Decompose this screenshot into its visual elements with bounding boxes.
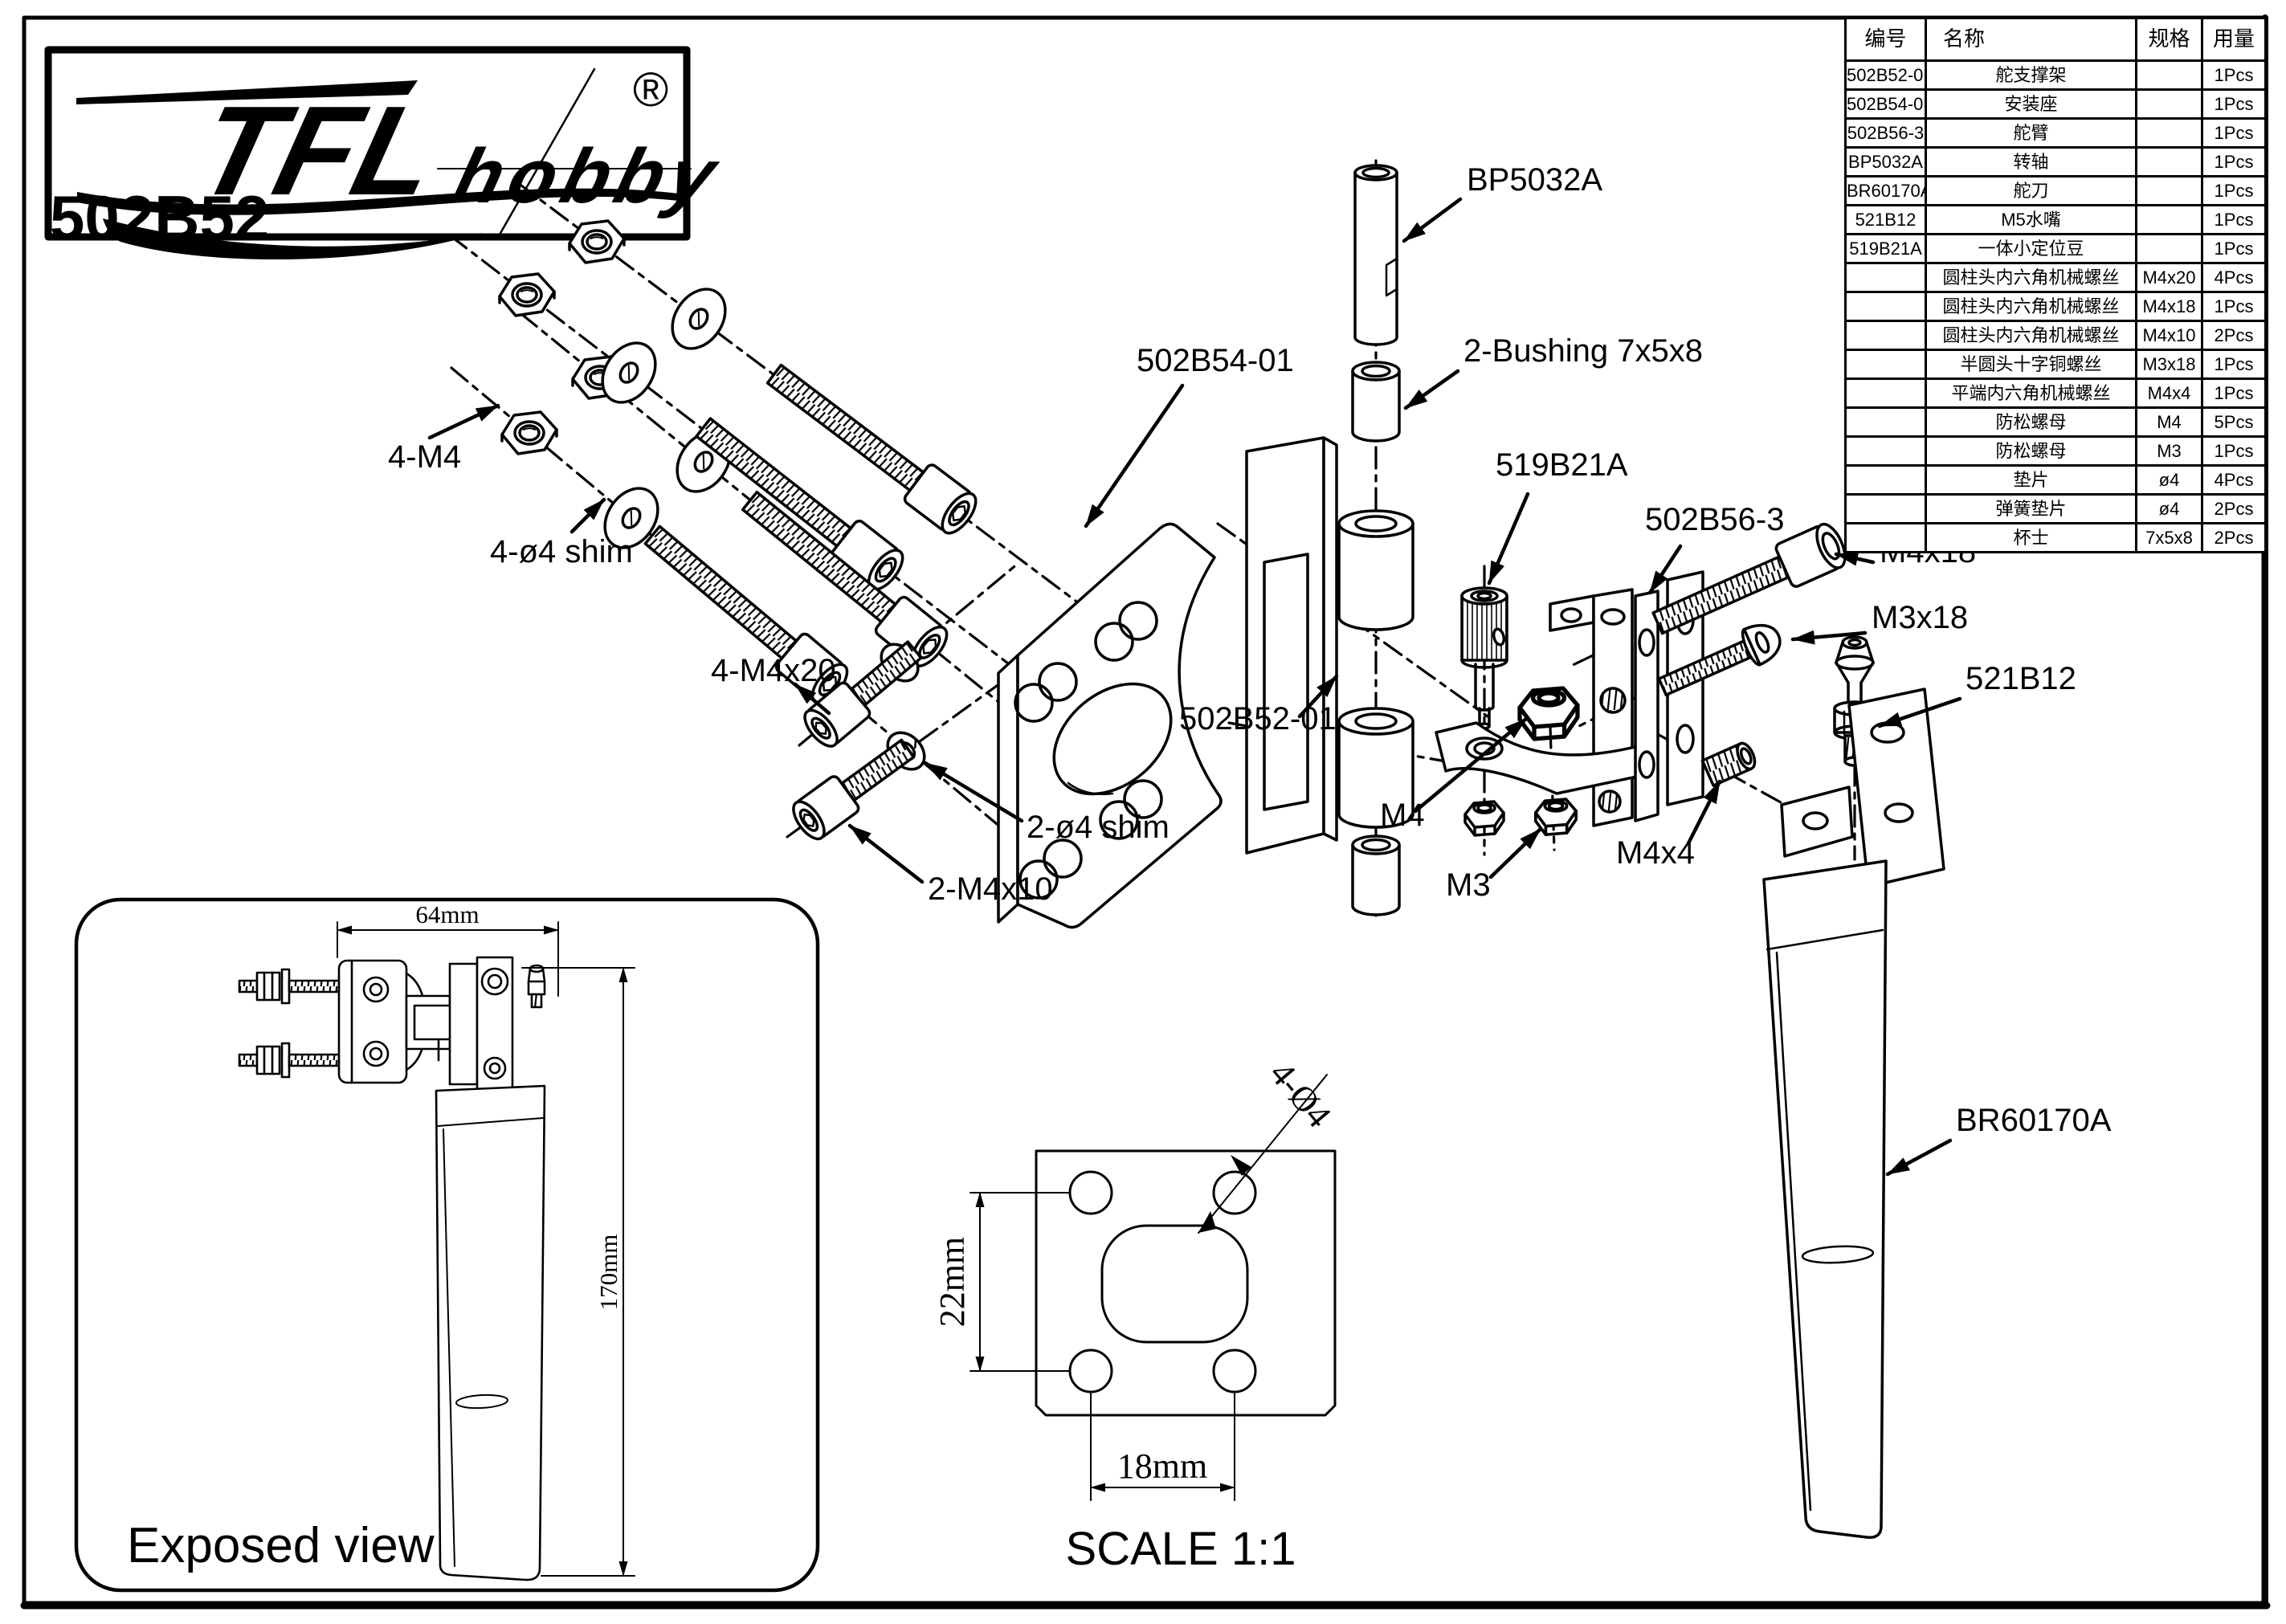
table-row: 502B54-01安装座1Pcs [1846,90,2266,119]
table-header-row: 编号 名称 规格 用量 [1846,18,2266,61]
cell-name: 防松螺母 [1926,437,2137,466]
callout-m3: M3 [1446,867,1491,903]
cell-qty: 1Pcs [2202,235,2266,263]
cell-code [1846,379,1926,408]
cell-name: 平端内六角机械螺丝 [1926,379,2137,408]
cell-name: 转轴 [1926,148,2137,177]
cell-qty: 1Pcs [2202,61,2266,90]
m4-lock-nut [1520,688,1578,739]
cell-spec: M3x18 [2137,350,2202,379]
dim-64mm: 64mm [415,900,479,928]
exposed-view-title: Exposed view [127,1518,435,1573]
cell-name: 杯士 [1926,524,2137,553]
cell-code [1846,495,1926,524]
callout-519b21a: 519B21A [1496,447,1628,483]
cell-code: 521B12 [1846,206,1926,235]
cell-code [1846,466,1926,495]
header-code: 编号 [1846,18,1926,61]
cell-name: 防松螺母 [1926,408,2137,437]
cell-name: 半圆头十字铜螺丝 [1926,350,2137,379]
scale-drawing: 22mm 18mm 4-Ø4 SCALE 1:1 [933,1054,1339,1575]
cell-code: 502B52-01 [1846,61,1926,90]
cell-qty: 1Pcs [2202,350,2266,379]
dim-22mm: 22mm [933,1237,972,1327]
registered-mark: ® [633,63,668,116]
cell-code [1846,321,1926,350]
cell-code: BP5032A [1846,148,1926,177]
table-row: 杯士7x5x82Pcs [1846,524,2266,553]
table-row: 平端内六角机械螺丝M4x41Pcs [1846,379,2266,408]
m4x4-set-screw [1702,741,1758,785]
cell-name: 圆柱头内六角机械螺丝 [1926,292,2137,321]
cell-code: 502B54-01 [1846,90,1926,119]
cell-spec: M3 [2137,437,2202,466]
callout-4-o4-shim: 4-ø4 shim [490,534,633,569]
cell-code [1846,350,1926,379]
logo-hobby: hobby [446,133,731,218]
cell-name: 安装座 [1926,90,2137,119]
scale-title: SCALE 1:1 [1066,1523,1296,1575]
cell-spec [2137,119,2202,148]
cell-name: 舵刀 [1926,177,2137,206]
cell-qty: 1Pcs [2202,292,2266,321]
cell-name: M5水嘴 [1926,206,2137,235]
cell-spec [2137,235,2202,263]
cell-spec [2137,177,2202,206]
table-row: 防松螺母M31Pcs [1846,437,2266,466]
cell-name: 垫片 [1926,466,2137,495]
callout-4-m4x20: 4-M4x20 [711,653,836,688]
o4-shims [592,280,741,558]
parts-table: 编号 名称 规格 用量 502B52-01舵支撑架1Pcs 502B54-01安… [1844,17,2267,553]
page: { "brand": { "tfl": "TFL", "hobby": "hob… [0,0,2286,1624]
table-row: 垫片ø44Pcs [1846,466,2266,495]
cell-qty: 1Pcs [2202,177,2266,206]
cell-code [1846,524,1926,553]
cell-spec: M4x20 [2137,263,2202,292]
cell-name: 一体小定位豆 [1926,235,2137,263]
shaft-bp5032a [1355,165,1397,345]
callout-521b12: 521B12 [1966,661,2076,696]
cell-qty: 1Pcs [2202,379,2266,408]
dim-4-o4: 4-Ø4 [1262,1054,1339,1135]
header-name: 名称 [1926,18,2137,61]
cell-code [1846,408,1926,437]
cell-spec [2137,61,2202,90]
table-row: 圆柱头内六角机械螺丝M4x181Pcs [1846,292,2266,321]
cell-qty: 2Pcs [2202,524,2266,553]
callout-2-o4-shim: 2-ø4 shim [1027,810,1170,845]
header-spec: 规格 [2137,18,2202,61]
table-row: 519B21A一体小定位豆1Pcs [1846,235,2266,263]
cell-qty: 1Pcs [2202,119,2266,148]
cell-code: 519B21A [1846,235,1926,263]
cell-spec: M4 [2137,408,2202,437]
dim-18mm: 18mm [1117,1447,1207,1486]
cell-spec [2137,206,2202,235]
cell-qty: 4Pcs [2202,466,2266,495]
callout-2-m4x10: 2-M4x10 [928,871,1053,907]
table-row: 防松螺母M45Pcs [1846,408,2266,437]
cell-name: 舵支撑架 [1926,61,2137,90]
cell-code: BR60170A [1846,177,1926,206]
cell-qty: 1Pcs [2202,148,2266,177]
table-row: 圆柱头内六角机械螺丝M4x102Pcs [1846,321,2266,350]
cell-spec: M4x18 [2137,292,2202,321]
part-number: 502B52 [50,182,269,253]
callout-502b56: 502B56-3 [1645,502,1784,537]
cell-qty: 5Pcs [2202,408,2266,437]
cell-qty: 2Pcs [2202,321,2266,350]
cell-code [1846,292,1926,321]
cell-code [1846,437,1926,466]
table-row: 圆柱头内六角机械螺丝M4x204Pcs [1846,263,2266,292]
cell-qty: 2Pcs [2202,495,2266,524]
table-row: 521B12M5水嘴1Pcs [1846,206,2266,235]
table-row: 502B56-3舵臂1Pcs [1846,119,2266,148]
callout-bushing: 2-Bushing 7x5x8 [1463,333,1703,369]
callout-br60170a: BR60170A [1956,1103,2112,1138]
exposed-view: 64mm 170mm Exposed view [76,900,818,1590]
cell-name: 圆柱头内六角机械螺丝 [1926,321,2137,350]
cell-spec [2137,148,2202,177]
cell-spec [2137,90,2202,119]
cell-name: 圆柱头内六角机械螺丝 [1926,263,2137,292]
table-row: BR60170A舵刀1Pcs [1846,177,2266,206]
cell-code [1846,263,1926,292]
table-row: 502B52-01舵支撑架1Pcs [1846,61,2266,90]
table-row: 弹簧垫片ø42Pcs [1846,495,2266,524]
cell-name: 弹簧垫片 [1926,495,2137,524]
cell-spec: ø4 [2137,495,2202,524]
callout-m4x4: M4x4 [1616,835,1695,871]
cell-spec: M4x4 [2137,379,2202,408]
table-row: 半圆头十字铜螺丝M3x181Pcs [1846,350,2266,379]
callout-502b54: 502B54-01 [1137,343,1294,378]
cell-name: 舵臂 [1926,119,2137,148]
cell-spec: M4x10 [2137,321,2202,350]
cell-qty: 1Pcs [2202,90,2266,119]
cell-qty: 1Pcs [2202,206,2266,235]
callout-m4: M4 [1380,798,1425,833]
cell-spec: 7x5x8 [2137,524,2202,553]
callout-bp5032a: BP5032A [1467,162,1602,198]
callout-502b52-01: 502B52-01 [1179,701,1337,737]
cell-spec: ø4 [2137,466,2202,495]
m4-nuts [500,221,627,454]
cell-qty: 1Pcs [2202,437,2266,466]
table-row: BP5032A转轴1Pcs [1846,148,2266,177]
cell-qty: 4Pcs [2202,263,2266,292]
cell-code: 502B56-3 [1846,119,1926,148]
callout-4-m4: 4-M4 [388,439,461,475]
callout-m3x18: M3x18 [1872,600,1968,635]
header-qty: 用量 [2202,18,2266,61]
dim-170mm: 170mm [594,1234,623,1311]
